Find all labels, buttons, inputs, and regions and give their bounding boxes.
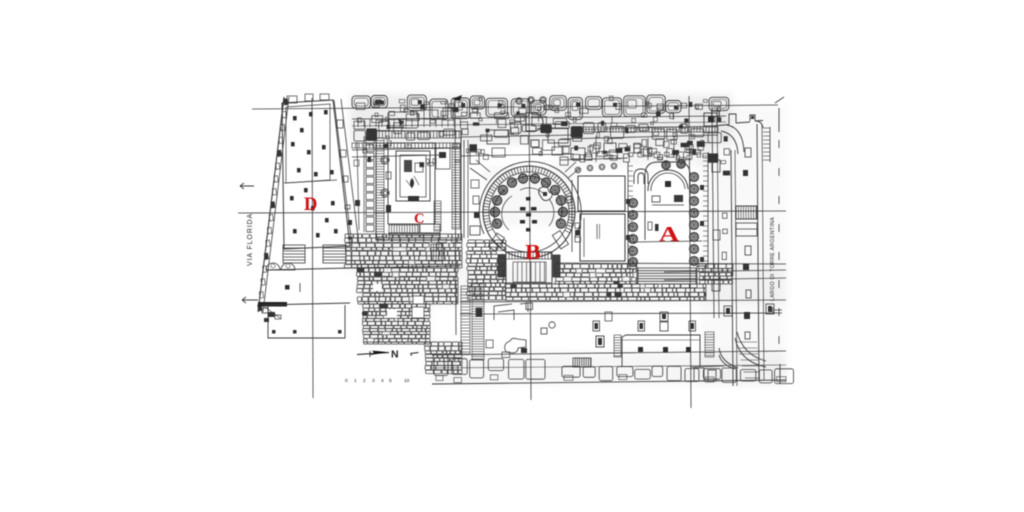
svg-text:N: N — [391, 349, 399, 361]
svg-text:C: C — [414, 211, 424, 227]
svg-text:LARGO DI TORRE ARGENTINA: LARGO DI TORRE ARGENTINA — [770, 217, 776, 301]
svg-text:D: D — [304, 195, 317, 215]
svg-text:B: B — [525, 240, 541, 264]
svg-text:A: A — [659, 223, 679, 246]
svg-text:VIA FLORIDA: VIA FLORIDA — [247, 213, 254, 266]
